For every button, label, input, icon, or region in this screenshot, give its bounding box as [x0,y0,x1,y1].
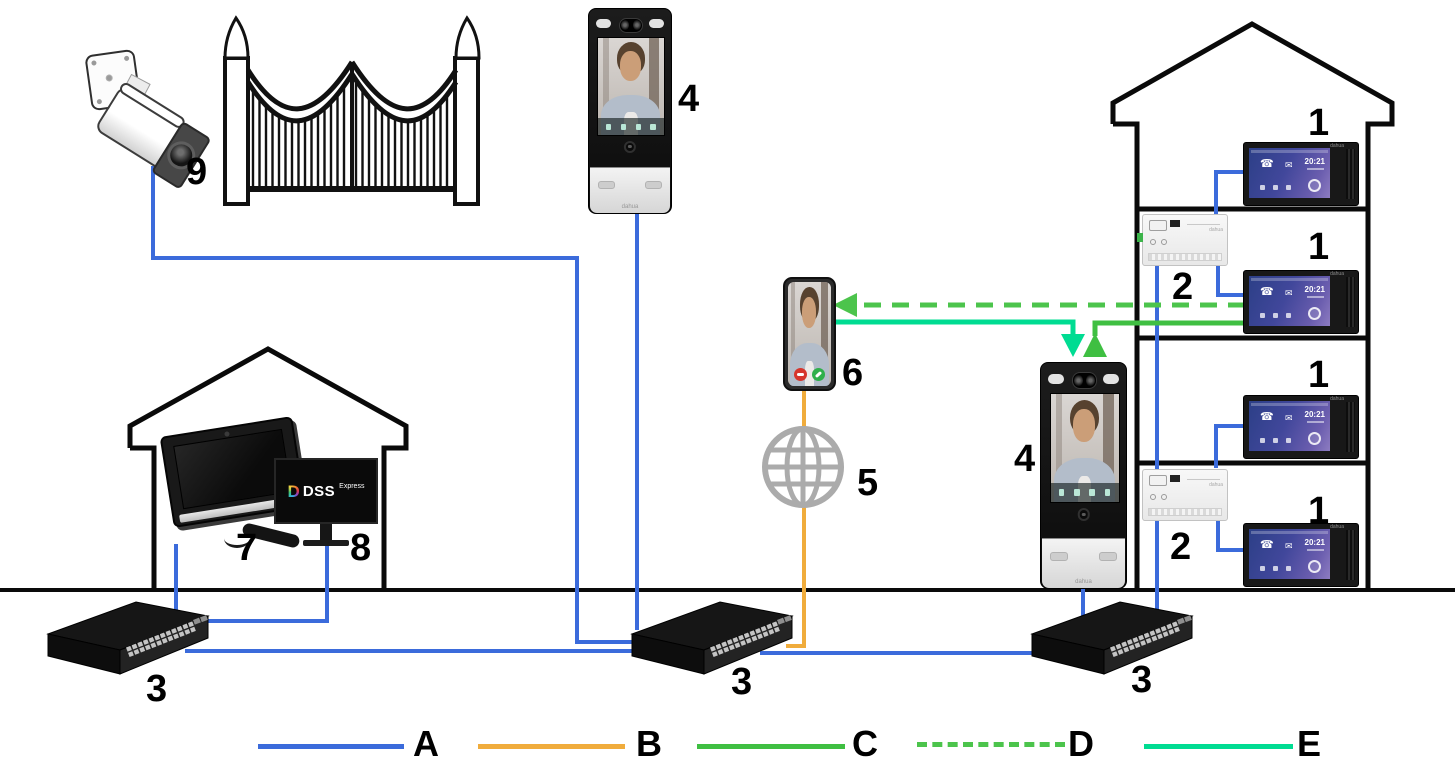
legend-label-b: B [636,726,662,762]
arrow-down-icon [1061,334,1085,357]
settings-icon [1308,307,1321,320]
monitor-date-bar [1307,168,1324,170]
indoor-monitor-1: ☎ ✉ 20:21 dahua [1243,142,1359,206]
legend-line-c [697,744,845,749]
device-label-distributor-1: 2 [1172,268,1193,306]
legend-label-a: A [413,726,439,762]
switch-3d-icon [38,598,213,694]
app-tiles [1260,185,1291,190]
switch-3d-icon [622,598,797,694]
monitor-date-bar [1307,296,1324,298]
monitor-screen: ☎ ✉ 20:21 [1249,529,1330,579]
legend-label-e: E [1297,726,1321,762]
mail-icon: ✉ [1285,289,1293,298]
call-button [1050,552,1068,561]
smartphone [783,277,836,391]
speaker-grille [1346,402,1355,452]
device-label-smartphone: 6 [842,354,863,392]
network-switch-2 [622,598,797,694]
indoor-monitor-3: ☎ ✉ 20:21 dahua [1243,395,1359,459]
call-button [598,181,615,189]
monitor-screen: ☎ ✉ 20:21 [1249,276,1330,326]
door-station-panel: dahua [590,167,670,213]
screen-icon-row [1051,483,1119,502]
device-label-masterstation: 7 [236,529,257,567]
legend-line-d [917,742,1065,752]
monitor-screen: ☎ ✉ 20:21 [1249,401,1330,451]
ir-light-icon [1048,374,1064,384]
line-monitor2-link [1218,264,1245,295]
monitor-time: 20:21 [1305,286,1325,294]
device-label-distributor-2: 2 [1170,528,1191,566]
phone-icon: ☎ [1260,287,1274,298]
power-connector [1137,233,1143,242]
card-reader [1099,552,1117,561]
mail-icon: ✉ [1285,161,1293,170]
camera-sun-shield [118,81,187,130]
ir-light-icon [649,19,665,28]
doorbell-camera-icon [624,141,636,153]
door-station-panel: dahua [1042,538,1125,589]
monitor-time: 20:21 [1305,411,1325,419]
arrow-left-icon [833,293,857,317]
settings-icon [1308,432,1321,445]
mail-icon: ✉ [1285,414,1293,423]
legend-label-c: C [852,726,878,762]
gate-frame [225,18,479,204]
brand-logo: dahua [590,204,670,210]
brand-logo: dahua [1330,397,1344,402]
line-monitor4-link [1218,519,1245,550]
network-port [1170,475,1180,482]
device-label-switch-3: 3 [1131,661,1152,699]
app-line-e [833,322,1085,357]
monitor-time: 20:21 [1305,158,1325,166]
screen-icon-row [598,118,664,136]
dss-name: DSS [303,484,335,499]
network-switch-3 [1022,598,1197,694]
switch-3d-icon [1022,598,1197,694]
phone-icon: ☎ [1260,412,1274,423]
brand-logo: dahua [1209,483,1223,488]
ip-camera [86,48,231,178]
line-dss-to-switch1 [198,542,327,621]
indoor-monitor-4: ☎ ✉ 20:21 dahua [1243,523,1359,587]
speaker-grille [1346,530,1355,580]
device-label-switch-1: 3 [146,670,167,708]
speaker-grille [1346,277,1355,327]
topology-diagram: dahua dahua [0,0,1455,767]
door-station-screen [1050,393,1120,503]
dss-screen: D DSS Express [274,458,378,524]
network-switch-1 [38,598,213,694]
app-tiles [1260,566,1291,571]
door-station-2: dahua [1040,362,1127,589]
device-label-camera: 9 [186,153,207,191]
terminal-block [1148,253,1222,261]
phone-screen [788,282,831,386]
device-label-monitor-1: 1 [1308,104,1329,142]
arrow-up-icon [1083,333,1107,357]
app-line [833,322,1073,334]
brand-logo: dahua [1042,579,1125,585]
dss-logo-icon: D [288,483,300,500]
legend-line-b [478,744,625,749]
call-end-icon [794,368,807,381]
call-line [1095,323,1245,336]
network-port [1170,220,1180,227]
device-label-internet: 5 [857,464,878,502]
device-label-monitor-2: 1 [1308,228,1329,266]
phone-icon: ☎ [1260,540,1274,551]
settings-icon [1308,179,1321,192]
card-reader [645,181,662,189]
monitor-time: 20:21 [1305,539,1325,547]
door-station-1: dahua [588,8,672,214]
brand-logo: dahua [1209,228,1223,233]
call-buttons [788,368,831,381]
device-label-doorstation-2: 4 [1014,440,1035,478]
brand-logo: dahua [1330,272,1344,277]
gate-finial-right [456,18,479,58]
camera-dot-icon [224,431,230,437]
brand-logo: dahua [1330,144,1344,149]
legend-line-a [258,744,404,749]
dss-suffix: Express [339,483,364,490]
dual-camera-icon [1072,372,1098,389]
phone-icon: ☎ [1260,159,1274,170]
brand-logo: dahua [1330,525,1344,530]
terminal-block [1148,508,1222,516]
ir-light-icon [596,19,612,28]
device-label-dss: 8 [350,529,371,567]
indoor-monitor-2: ☎ ✉ 20:21 dahua [1243,270,1359,334]
ir-light-icon [1103,374,1119,384]
device-label-switch-2: 3 [731,663,752,701]
entrance-gate [222,12,482,210]
internet-globe-icon [765,429,841,505]
mail-icon: ✉ [1285,542,1293,551]
monitor-base [303,540,349,546]
line-camera-to-switch2 [153,166,634,642]
device-label-monitor-3: 1 [1308,356,1329,394]
legend-label-d: D [1068,726,1094,762]
door-station-screen [597,37,665,137]
settings-icon [1308,560,1321,573]
monitor-date-bar [1307,549,1324,551]
app-tiles [1260,438,1291,443]
dual-camera-icon [619,18,644,33]
app-tiles [1260,313,1291,318]
call-answer-icon [812,368,825,381]
speaker-grille [1346,149,1355,199]
doorbell-camera-icon [1077,508,1090,521]
floor-distributor-2: dahua [1142,469,1228,521]
monitor-screen: ☎ ✉ 20:21 [1249,148,1330,198]
device-label-doorstation-1: 4 [678,80,699,118]
legend-line-e [1144,744,1293,749]
monitor-stand [320,524,332,540]
monitor-date-bar [1307,421,1324,423]
floor-distributor-1: dahua [1142,214,1228,266]
device-label-monitor-4: 1 [1308,492,1329,530]
